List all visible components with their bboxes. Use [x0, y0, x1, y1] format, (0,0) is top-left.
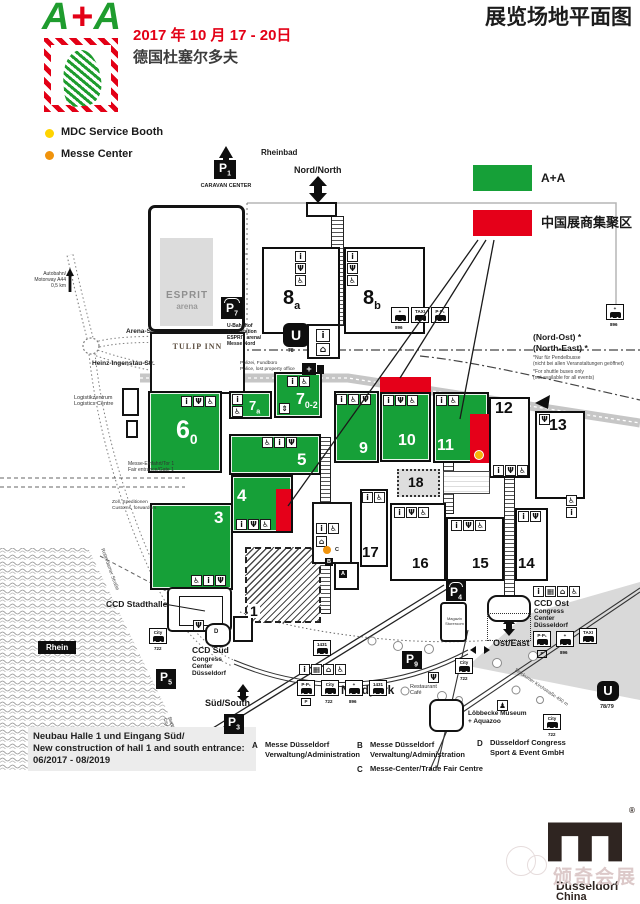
- restaurant-cafe-label: Restaurant Café: [410, 684, 437, 697]
- p-number: 4: [458, 594, 462, 601]
- north-gate: [306, 202, 337, 217]
- hall-10-number: 10: [398, 433, 416, 449]
- brand-china: China: [556, 891, 587, 904]
- hall-6-icons: iΨ♿: [181, 396, 216, 407]
- service-icons-row: i▦⌂♿: [299, 664, 346, 675]
- wheelchair-icon: ♿: [566, 495, 577, 506]
- restaurant-icon: Ψ: [248, 519, 259, 530]
- legend-b-line2: Verwaltung/Administration: [370, 751, 465, 760]
- esprit-arena-field: [160, 238, 213, 326]
- wheelchair-icon: ♿: [260, 519, 271, 530]
- info-building: i⌂: [307, 324, 340, 359]
- stop-type: City: [456, 660, 472, 665]
- stop-type: 1431: [314, 642, 330, 647]
- hall-9-number: 9: [359, 441, 368, 457]
- bus-stop-896: +: [391, 307, 409, 323]
- legend-key-b: B: [357, 741, 363, 750]
- legend-a-line2: Verwaltung/Administration: [265, 751, 360, 760]
- p-badge: P: [301, 698, 311, 706]
- watermark-text: 颁奇会展: [553, 862, 637, 889]
- info-icon: i: [347, 251, 358, 262]
- ost-label: Ost/East: [493, 638, 530, 649]
- hall-4-number: 4: [237, 487, 246, 504]
- marker-c: C: [335, 547, 339, 553]
- bus-icon: [301, 688, 312, 694]
- hall-7a-number: 7a: [249, 399, 260, 416]
- u-bahn-station-icon: U: [283, 323, 309, 347]
- bus-stop-896-east: +: [606, 304, 624, 320]
- loebbecke-label: Löbbecke Museum + Aquazoo: [468, 710, 527, 725]
- photo-icon: ▦: [311, 664, 322, 675]
- hall-12-icons: iΨ♿: [493, 465, 528, 476]
- stop-type: City: [322, 682, 338, 687]
- info-icon: i: [336, 394, 347, 405]
- bus-icon: [373, 688, 384, 694]
- parking-p7: P7: [221, 297, 243, 319]
- hall-16-number: 16: [412, 556, 429, 571]
- route-896: 896: [349, 699, 357, 704]
- note-line3: 06/2017 - 08/2019: [33, 755, 251, 767]
- legend-messe-center: Messe Center: [61, 148, 133, 161]
- route-896: 896: [560, 650, 568, 655]
- legend-a-line1: Messe Düsseldorf: [265, 741, 329, 750]
- hall-8b-number: 8b: [363, 288, 381, 312]
- bus-stop-896: +: [556, 631, 574, 647]
- hall-11-number: 11: [437, 438, 454, 454]
- nordost-fn2: (nicht bei allen Veranstaltungen geöffne…: [533, 362, 624, 368]
- hall-5-number: 5: [297, 451, 306, 468]
- info-icon: i: [518, 511, 529, 522]
- info-icon: i: [203, 575, 214, 586]
- route-896: 896: [610, 322, 618, 327]
- bus-icon: [537, 639, 548, 645]
- city-bus-stop-722: City: [149, 628, 167, 644]
- shuttle-stop: P·P₁: [297, 680, 315, 696]
- hall-17-icons: i♿: [362, 492, 385, 503]
- route-896: 896: [395, 325, 403, 330]
- hall-5-icons: ♿iΨ: [262, 437, 297, 448]
- legend-green-label: A+A: [541, 171, 565, 185]
- taxi-stop: TAXI: [579, 628, 597, 644]
- parking-p4: P4: [446, 581, 466, 601]
- photo-icon: ▦: [545, 586, 556, 597]
- first-aid-icon: +: [302, 363, 316, 375]
- p-number: 7: [234, 310, 238, 317]
- info-icon: i: [232, 394, 243, 405]
- note-line2: New construction of hall 1 and south ent…: [33, 743, 251, 755]
- center-icons: i♿: [316, 523, 339, 534]
- museum-building: [429, 699, 464, 732]
- ccd-ost-l3: Düsseldorf: [534, 622, 568, 630]
- stop-type: +: [607, 306, 623, 311]
- restaurant-icon: Ψ: [215, 575, 226, 586]
- info-icon: i: [236, 519, 247, 530]
- china-zone-hall10: [380, 377, 431, 392]
- taxi-stop-1431: 1431: [369, 680, 387, 696]
- restaurant-icon: Ψ: [530, 511, 541, 522]
- site-map-page: { "header":{"logo":{"a1":"A","plus":"+",…: [0, 0, 640, 902]
- wheelchair-icon: ♿: [475, 520, 486, 531]
- shuttle-stop: P·P₁: [431, 307, 449, 323]
- stop-type: TAXI: [580, 630, 596, 635]
- wheelchair-icon: ♿: [262, 437, 273, 448]
- mdc-dot-icon: [45, 129, 54, 138]
- arena-str-label: Arena-Str.: [126, 328, 157, 336]
- event-city: 德国杜塞尔多夫: [133, 49, 238, 67]
- restaurant-icon: Ψ: [360, 394, 371, 405]
- south-entrance-building: [233, 616, 253, 642]
- hall-14-number: 14: [518, 556, 535, 571]
- parking-p1: P1: [214, 160, 236, 179]
- bus-icon: [325, 688, 336, 694]
- ccd-sued-l3: Düsseldorf: [192, 670, 226, 678]
- restaurant-icon: Ψ: [428, 672, 439, 683]
- messe-duesseldorf-logo: [548, 816, 622, 867]
- bus-icon: [547, 722, 558, 728]
- p-number: 1: [227, 170, 231, 177]
- legend-b-line1: Messe Düsseldorf: [370, 741, 434, 750]
- restaurant-icon: Ψ: [505, 465, 516, 476]
- info-icon: i: [383, 395, 394, 406]
- wheelchair-icon: ♿: [374, 492, 385, 503]
- hall-9-icons: i♿Ψ: [336, 394, 371, 405]
- info-icon: i: [493, 465, 504, 476]
- page-title: 展览场地平面图: [380, 6, 632, 31]
- info-icon: i: [295, 251, 306, 262]
- legend-key-d: D: [477, 739, 483, 748]
- hall-10-icons: iΨ♿: [383, 395, 418, 406]
- stop-type: City: [544, 716, 560, 721]
- shelter-icon: ⌂: [557, 586, 568, 597]
- p-number: 5: [168, 679, 172, 686]
- info-icon: i: [274, 437, 285, 448]
- legend-d-line1: Düsseldorf Congress: [490, 739, 566, 748]
- registered-mark: ®: [629, 806, 635, 815]
- wheelchair-icon: ♿: [347, 275, 358, 286]
- bus-icon: [153, 636, 164, 642]
- bus-icon: [560, 639, 571, 645]
- p-label: P: [160, 670, 168, 684]
- info-icon: i: [451, 520, 462, 531]
- logistics-building: [126, 420, 138, 438]
- arena-label: arena: [163, 302, 211, 311]
- hall-8b-icons: iΨ♿: [347, 251, 358, 286]
- u-bahn-ost-icon: U: [597, 681, 619, 701]
- ccd-sued-label: CCD Süd: [192, 645, 229, 655]
- logistics-building: [122, 388, 139, 416]
- zoll-label: Zoll, Speditionen Customs, forwarders: [112, 500, 162, 511]
- bus-icon: [317, 648, 328, 654]
- ccd-stadthalle-label: CCD Stadthalle: [106, 599, 167, 609]
- p-badge: P: [537, 650, 547, 658]
- hall-1-number: 1: [248, 604, 260, 618]
- caravan-center-label: CARAVAN CENTER: [195, 183, 257, 189]
- p-number: 9: [414, 661, 418, 668]
- nordost-fn4: (not available for all events): [533, 376, 594, 382]
- p-label: P: [226, 301, 234, 315]
- hall-7-0-2-number: 70-2: [296, 392, 318, 410]
- hall-6-number: 60: [176, 418, 198, 447]
- restaurant-icon: Ψ: [295, 263, 306, 274]
- wheelchair-icon: ♿: [232, 406, 243, 417]
- legend-red-label: 中国展商集聚区: [541, 215, 632, 230]
- bus-icon: [459, 666, 470, 672]
- polizei-text: Polizei, Fundbüro Police, lost property …: [240, 361, 310, 372]
- wheelchair-icon: ♿: [335, 664, 346, 675]
- aa-logo-text: A+A: [42, 0, 122, 39]
- marker-b: B: [325, 558, 333, 566]
- note-line1: Neubau Halle 1 und Eingang Süd/: [33, 731, 251, 743]
- legend-green-swatch: [473, 165, 532, 191]
- hall-7-icons: i♿: [287, 376, 310, 387]
- bus-icon: [395, 315, 406, 321]
- wheelchair-icon: ♿: [205, 396, 216, 407]
- wheelchair-icon: ♿: [328, 523, 339, 534]
- logo-letter: A: [42, 0, 70, 38]
- legend-c-line1: Messe-Center/Trade Fair Centre: [370, 765, 483, 774]
- info-icon: i: [316, 329, 330, 342]
- city-bus-stop-722: City: [455, 658, 473, 674]
- hall-17-number: 17: [362, 545, 379, 560]
- hall-16-icons: iΨ♿: [394, 507, 429, 518]
- wheelchair-icon: ♿: [418, 507, 429, 518]
- hall-12-number: 12: [495, 401, 513, 417]
- hall-7a-icons: i♿: [232, 394, 243, 417]
- info-icon: i: [181, 396, 192, 407]
- info-icon: i: [566, 507, 577, 518]
- stop-type: +: [346, 682, 362, 687]
- shelter-icon: ⌂: [316, 343, 330, 356]
- wheelchair-icon: ♿: [348, 394, 359, 405]
- hall-14-east-icons: ♿i: [566, 495, 577, 518]
- stop-type: P·P₁: [298, 682, 314, 687]
- p-label: P: [219, 161, 227, 175]
- hall-18-number: 18: [408, 475, 424, 489]
- restaurant-icon: Ψ: [395, 395, 406, 406]
- ccd-ost-label: CCD Ost: [534, 598, 569, 608]
- china-zone-hall4: [276, 489, 291, 531]
- stop-type: 1431: [370, 682, 386, 687]
- route-722: 722: [154, 646, 162, 651]
- ost-service-icons: i▦⌂♿: [533, 586, 580, 597]
- gate1-label: Messe-Einfahrt/Tor 1 Fair entrance/Gate …: [128, 462, 186, 474]
- city-bus-stop-722: City: [543, 714, 561, 730]
- restaurant-icon: Ψ: [193, 620, 204, 631]
- stop-type: +: [392, 309, 408, 314]
- wheelchair-icon: ♿: [299, 376, 310, 387]
- logo-letter: A: [94, 0, 122, 38]
- info-icon: i: [436, 395, 447, 406]
- restaurant-icon: Ψ: [286, 437, 297, 448]
- bus-icon: [349, 688, 360, 694]
- messe-center-dot-icon: [323, 546, 331, 554]
- p-label: P: [228, 715, 236, 729]
- route-722: 722: [325, 699, 333, 704]
- magazin-building: Magazin Storeroom: [440, 602, 467, 642]
- hall-15-icons: iΨ♿: [451, 520, 486, 531]
- route-722: 722: [548, 732, 556, 737]
- construction-note: Neubau Halle 1 und Eingang Süd/ New cons…: [28, 727, 256, 771]
- hall-8a-number: 8a: [283, 288, 300, 312]
- legend-d-line2: Sport & Event GmbH: [490, 749, 564, 758]
- marker-a: A: [339, 570, 347, 578]
- info-icon: i: [533, 586, 544, 597]
- restaurant-icon: Ψ: [463, 520, 474, 531]
- legend-key-c: C: [357, 765, 363, 774]
- bus-icon: [435, 315, 446, 321]
- info-icon: i: [287, 376, 298, 387]
- shelter-icon: ⌂: [323, 664, 334, 675]
- head-silhouette-icon: [61, 48, 104, 107]
- info-icon: i: [299, 664, 310, 675]
- legend-red-swatch: [473, 210, 532, 236]
- aa-logo-mark: [44, 38, 118, 112]
- taxi-stop: TAXI: [411, 307, 429, 323]
- autobahn-label: Autobahn/ Motorway A44 0,5 km: [24, 272, 66, 290]
- restaurant-icon: Ψ: [193, 396, 204, 407]
- ubahnhof-text: U-Bahnhof Tram station ESPRIT arena/ Mes…: [227, 324, 281, 348]
- hall-8a-icons: iΨ♿: [295, 251, 306, 286]
- parking-p3: P3: [224, 714, 244, 734]
- rheinbad-label: Rheinbad: [261, 148, 297, 157]
- stop-type: P·P₁: [534, 633, 550, 638]
- bus-icon: [610, 312, 621, 318]
- nordost-de: (Nord-Ost) *: [533, 332, 581, 342]
- parking-p5: P5: [156, 669, 176, 689]
- wheelchair-icon: ♿: [517, 465, 528, 476]
- stop-type: +: [557, 633, 573, 638]
- ost-gate-area: [487, 613, 531, 641]
- messe-center-dot-icon: [45, 151, 54, 160]
- legend-mdc: MDC Service Booth: [61, 126, 163, 139]
- stop-type: TAXI: [412, 309, 428, 314]
- wheelchair-icon: ♿: [569, 586, 580, 597]
- route-722: 722: [460, 676, 468, 681]
- marker-d: D: [214, 629, 218, 636]
- esprit-label: ESPRIT: [163, 290, 211, 302]
- p-number: 3: [236, 724, 240, 731]
- stop-type: City: [150, 630, 166, 635]
- wheelchair-icon: ♿: [407, 395, 418, 406]
- taxi-stop-1431: 1431: [313, 640, 331, 656]
- mdc-booth-dot-icon: [474, 450, 484, 460]
- city-bus-stop: City: [321, 680, 339, 696]
- hall-14-icons: iΨ: [518, 511, 541, 522]
- info-icon: i: [394, 507, 405, 518]
- lift-icon: ⇕: [279, 403, 290, 414]
- bus-stop-896: +: [345, 680, 363, 696]
- wheelchair-icon: ♿: [295, 275, 306, 286]
- u78-label: 78: [288, 349, 294, 355]
- rhein-label: Rhein: [38, 641, 76, 654]
- hall-11-icons: i♿: [436, 395, 459, 406]
- heinz-ingenstau-label: Heinz-Ingenstau-Str.: [92, 360, 155, 368]
- legend-key-a: A: [252, 741, 258, 750]
- u7879-label: 78/79: [600, 704, 614, 710]
- bus-icon: [583, 636, 594, 642]
- p-label: P: [406, 652, 414, 666]
- aid-annex: [317, 365, 324, 374]
- stop-type: P·P₁: [432, 309, 448, 314]
- north-entrance-label: Nord/North: [294, 165, 342, 176]
- info-icon: i: [362, 492, 373, 503]
- watermark-circle: [527, 855, 547, 875]
- event-date: 2017 年 10 月 17 - 20日: [133, 27, 291, 45]
- nordost-en: (North-East) *: [533, 343, 588, 353]
- info-icon: i: [316, 523, 327, 534]
- p-label: P: [450, 585, 458, 599]
- hall-15-number: 15: [472, 556, 489, 571]
- bus-icon: [415, 315, 426, 321]
- wheelchair-icon: ♿: [448, 395, 459, 406]
- hall-13-number: 13: [549, 418, 567, 434]
- hall-3-number: 3: [214, 509, 223, 526]
- sued-label: Süd/South: [205, 698, 250, 709]
- east-spine-corridor: [504, 467, 515, 614]
- logistik-label: Logistikzentrum Logistics Centre: [74, 395, 113, 408]
- restaurant-icon: Ψ: [406, 507, 417, 518]
- hall-4-icons: iΨ♿: [236, 519, 271, 530]
- hall-3-icons: ♿iΨ: [191, 575, 226, 586]
- wheelchair-icon: ♿: [191, 575, 202, 586]
- magazin-label: Magazin Storeroom: [443, 617, 466, 626]
- parking-p9: P9: [402, 651, 422, 669]
- shuttle-stop: P·P₁: [533, 631, 551, 647]
- timetable-board: [443, 471, 490, 494]
- restaurant-icon: Ψ: [347, 263, 358, 274]
- logo-plus: +: [70, 0, 93, 38]
